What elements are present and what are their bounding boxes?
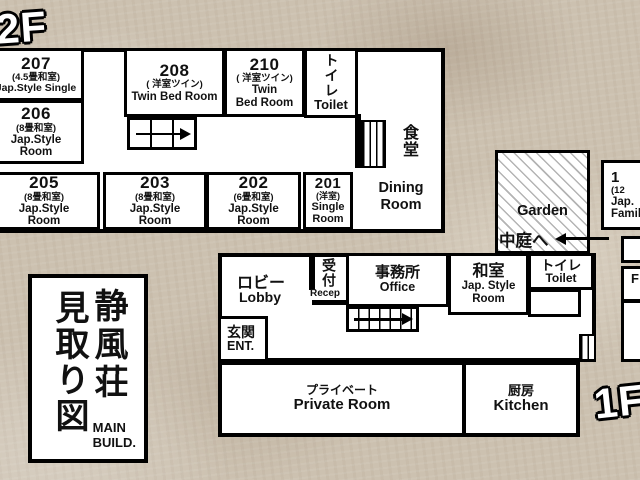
washitsu-label-en2: Room — [472, 293, 505, 305]
stairs-1f-arrow-shaft-icon — [354, 318, 406, 321]
room-206-number: 206 — [21, 105, 51, 123]
stairs-2f-arrow-head-icon — [180, 128, 191, 140]
room-210-label-en: Twin — [252, 84, 277, 96]
room-203-label-en: Jap.Style — [130, 203, 181, 215]
dining-label-en: Dining Room — [358, 180, 444, 213]
private-room: プライベート Private Room — [218, 361, 466, 437]
room-201: 201 (洋室) Single Room — [303, 172, 353, 230]
room-partial-number: 1 — [611, 170, 620, 186]
title-en-line1: MAIN — [93, 421, 136, 436]
office-label-en: Office — [380, 281, 415, 295]
room-partial-f: F — [621, 266, 640, 362]
room-203-label-en2: Room — [139, 215, 172, 227]
office-label-jp: 事務所 — [375, 265, 420, 281]
entrance-label-en: ENT. — [227, 340, 254, 354]
lobby-label-en: Lobby — [239, 289, 281, 305]
toilet-2f-label-jp: トイレ — [323, 53, 338, 98]
room-201-number: 201 — [315, 176, 342, 192]
room-partial-label-en: Jap. — [611, 196, 634, 208]
room-208: 208 ( 洋室ツイン) Twin Bed Room — [124, 48, 225, 117]
room-208-label-en: Twin Bed Room — [131, 91, 217, 103]
room-202-label-en2: Room — [237, 215, 270, 227]
room-207-label-en: Jap.Style Single — [0, 83, 76, 94]
dining-label-en-line1: Dining — [358, 180, 444, 197]
room-partial-type-jp: (12 — [611, 186, 625, 196]
room-202-number: 202 — [239, 174, 269, 192]
room-207-number: 207 — [21, 55, 51, 73]
reception-counter — [312, 300, 346, 305]
floor2-label: 2F — [0, 2, 49, 53]
room-208-type-jp: ( 洋室ツイン) — [146, 80, 202, 90]
kitchen-label-jp: 厨房 — [508, 384, 534, 398]
garden-label-en: Garden — [497, 203, 588, 219]
room-203-type-jp: (8畳和室) — [135, 193, 175, 203]
entrance-label-jp: 玄関 — [227, 325, 255, 340]
room-partial-f-label: F — [631, 272, 639, 286]
room-210: 210 ( 洋室ツイン) Twin Bed Room — [224, 48, 305, 117]
dining-label-jp: 食堂 — [396, 124, 420, 170]
garden-arrow-shaft-icon — [564, 237, 609, 240]
washitsu-room: 和室 Jap. Style Room — [448, 253, 529, 315]
room-203: 203 (8畳和室) Jap.Style Room — [103, 172, 207, 230]
room-207: 207 (4.5畳和室) Jap.Style Single — [0, 48, 84, 101]
utility-room — [528, 289, 581, 317]
garden-arrow-head-icon — [555, 233, 566, 245]
room-202: 202 (6畳和室) Jap.Style Room — [206, 172, 301, 230]
stairs-1f-arrow-head-icon — [402, 313, 413, 325]
room-205: 205 (8畳和室) Jap.Style Room — [0, 172, 100, 230]
toilet-2f-label-en: Toilet — [314, 98, 348, 112]
room-202-label-en: Jap.Style — [228, 203, 279, 215]
corridor-window-hatch-icon — [579, 334, 596, 361]
stairs-1f-icon — [346, 306, 419, 332]
room-203-number: 203 — [140, 174, 170, 192]
office-room: 事務所 Office — [346, 253, 449, 307]
room-210-number: 210 — [250, 56, 280, 74]
garden-label-jp: 中庭へ — [499, 227, 549, 251]
room-205-label-en2: Room — [28, 215, 61, 227]
floorplan-page: { "building": { "title_jp_1": "静風荘", "ti… — [0, 0, 640, 480]
title-floorplan-label: 見取り図 — [44, 290, 93, 434]
room-210-label-en2: Bed Room — [236, 97, 294, 109]
toilet-2f: トイレ Toilet — [304, 48, 358, 118]
title-box: 静風荘 見取り図 MAIN BUILD. — [28, 274, 148, 463]
washitsu-label-en: Jap. Style — [462, 280, 516, 292]
room-206-label-en2: Room — [20, 146, 53, 158]
room-partial-label-en2: Family — [611, 208, 640, 220]
dining-window-hatch-icon — [361, 120, 386, 168]
reception-wall — [309, 253, 315, 290]
reception-label-en: Recep — [310, 288, 340, 299]
reception-label-jp: 受付 — [319, 258, 339, 292]
dining-label-en-line2: Room — [358, 197, 444, 214]
toilet-1f: トイレ Toilet — [528, 253, 594, 290]
stairs-2f-icon — [127, 117, 197, 150]
washitsu-label-jp: 和室 — [472, 263, 504, 280]
entrance-room: 玄関 ENT. — [218, 316, 268, 362]
room-205-number: 205 — [29, 174, 59, 192]
kitchen-room: 厨房 Kitchen — [462, 361, 580, 437]
room-205-label-en: Jap.Style — [19, 203, 70, 215]
kitchen-label-en: Kitchen — [493, 398, 548, 414]
partial-divider-wall — [621, 299, 640, 303]
room-208-number: 208 — [160, 62, 190, 80]
toilet-1f-label-en: Toilet — [545, 272, 576, 284]
toilet-1f-label-jp: トイレ — [541, 259, 582, 273]
room-205-type-jp: (8畳和室) — [24, 193, 64, 203]
room-206-label-en: Jap.Style — [11, 134, 62, 146]
room-202-type-jp: (6畳和室) — [233, 193, 273, 203]
title-en: MAIN BUILD. — [93, 421, 136, 451]
room-partial-upper — [621, 236, 640, 263]
private-room-label-en: Private Room — [294, 397, 391, 413]
room-201-label-en2: Room — [312, 214, 343, 226]
title-en-line2: BUILD. — [93, 436, 136, 451]
room-210-type-jp: ( 洋室ツイン) — [236, 74, 292, 84]
room-206: 206 (8畳和室) Jap.Style Room — [0, 100, 84, 164]
stairs-2f-arrow-shaft-icon — [136, 133, 184, 136]
room-206-type-jp: (8畳和室) — [16, 124, 56, 134]
floor1-label: 1F — [592, 375, 640, 428]
room-partial-family: 1 (12 Jap. Family — [601, 160, 640, 230]
